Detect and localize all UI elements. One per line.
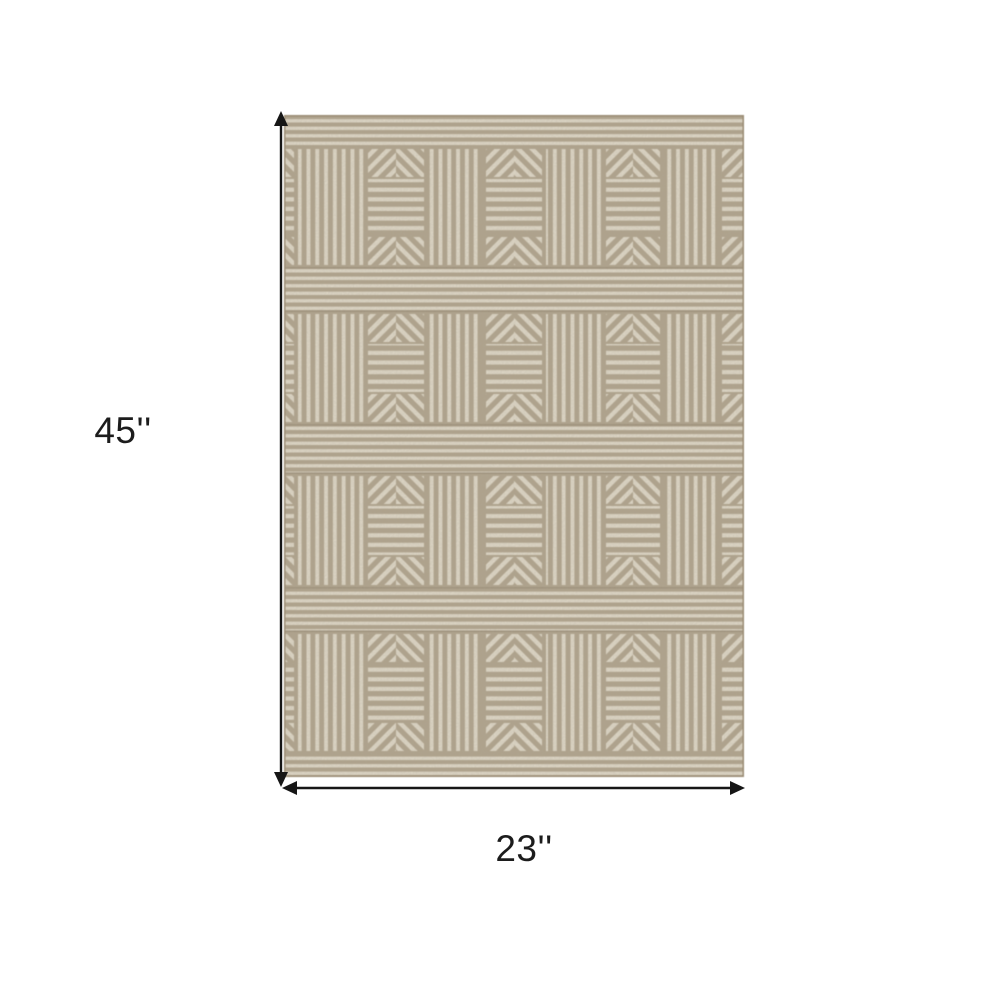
arrow-left-icon (282, 781, 297, 795)
rug-image (284, 115, 744, 777)
product-dimension-diagram: 45'' 23'' (0, 0, 1000, 996)
width-dimension-line (282, 781, 745, 795)
width-dimension-label: 23'' (495, 828, 552, 870)
height-dimension-label: 45'' (94, 410, 151, 452)
arrow-right-icon (730, 781, 745, 795)
rug-texture-overlay (284, 115, 744, 777)
